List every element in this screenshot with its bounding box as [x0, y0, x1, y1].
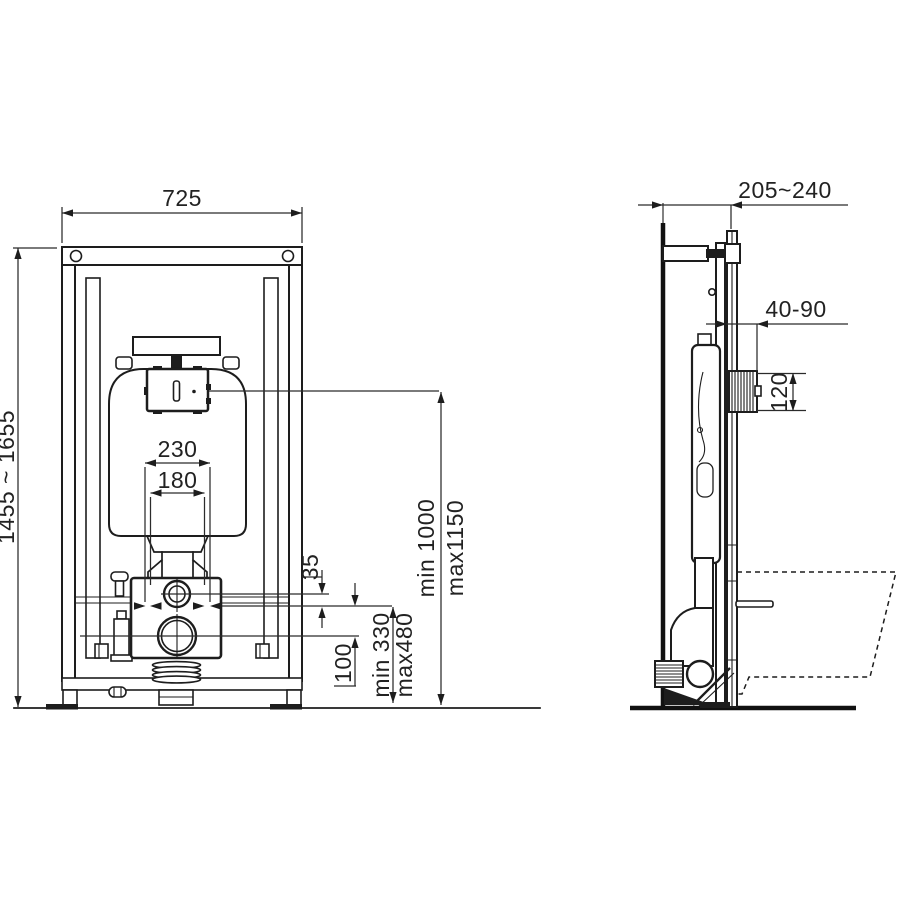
access-panel-dot [192, 390, 196, 394]
dim-panel-height-min-label: min 1000 [413, 499, 439, 598]
drain-pipe-section [687, 661, 713, 687]
front-view: 725 1455 ~ 1655 230 180 [0, 185, 540, 710]
dim-inlet-height-label: 120 [766, 372, 792, 412]
stop-valve [111, 572, 128, 596]
dim-depth-lines [638, 205, 848, 229]
cistern-profile [692, 345, 720, 563]
side-wall-and-floor [630, 203, 856, 708]
rail-shoe-left [95, 644, 108, 658]
dim-depth-label: 205~240 [738, 177, 832, 203]
top-crossbar [133, 337, 220, 355]
cistern-internals-2 [697, 463, 713, 497]
crossbar-hanger [171, 355, 182, 368]
dim-100-label: 100 [330, 643, 356, 683]
flush-pipe-side [695, 558, 713, 608]
outlet-bracket [159, 690, 193, 705]
top-rail-hole-left [71, 251, 82, 262]
front-frame [14, 247, 540, 710]
technical-drawing-page: 725 1455 ~ 1655 230 180 [0, 0, 900, 900]
drain-sleeve-hatch [656, 665, 683, 683]
inner-rail-left [86, 278, 100, 658]
foot-right [287, 690, 301, 705]
dim-outlet-height-max-label: max480 [391, 613, 417, 698]
side-plumbing [655, 558, 773, 706]
drain-wedge [664, 688, 712, 705]
flush-valve-seat [147, 536, 208, 552]
wall-bracket [663, 244, 740, 263]
dim-35-label: 35 [297, 554, 323, 581]
dim-projection-label: 40-90 [765, 296, 826, 322]
wc-bowl-outline [737, 572, 896, 694]
drain-elbow [671, 608, 713, 666]
side-view: 205~240 40-90 120 [630, 177, 896, 708]
fixing-stud-rod [736, 601, 773, 607]
dim-panel-height-max-label: max1150 [442, 500, 468, 596]
floor-bolt [109, 687, 126, 697]
side-inlet-sleeve [729, 371, 761, 412]
top-rail [62, 247, 302, 265]
outlet-corrugation [153, 662, 201, 683]
side-cistern [692, 334, 720, 563]
upright-right [289, 265, 302, 681]
cistern-cap-left [116, 357, 132, 369]
access-panel-slot [174, 381, 180, 401]
dim-stud-spacing-label: 230 [158, 436, 198, 462]
cistern-cap-right [223, 357, 239, 369]
dim-width-lines [62, 207, 302, 243]
rail-bolt [709, 289, 715, 295]
dim-height-lines [13, 248, 57, 707]
inner-rail-right [264, 278, 278, 658]
rail-shoe-right [256, 644, 269, 658]
dim-pipe-spacing-label: 180 [158, 467, 198, 493]
foot-left [63, 690, 77, 705]
upright-left [62, 265, 75, 681]
inlet-sleeve-nub [755, 386, 761, 396]
top-rail-hole-right [283, 251, 294, 262]
dim-width-label: 725 [162, 185, 202, 211]
dim-height-label: 1455 ~ 1655 [0, 410, 19, 544]
flush-pipe [148, 552, 207, 578]
installation-frame-drawing: 725 1455 ~ 1655 230 180 [0, 0, 900, 900]
